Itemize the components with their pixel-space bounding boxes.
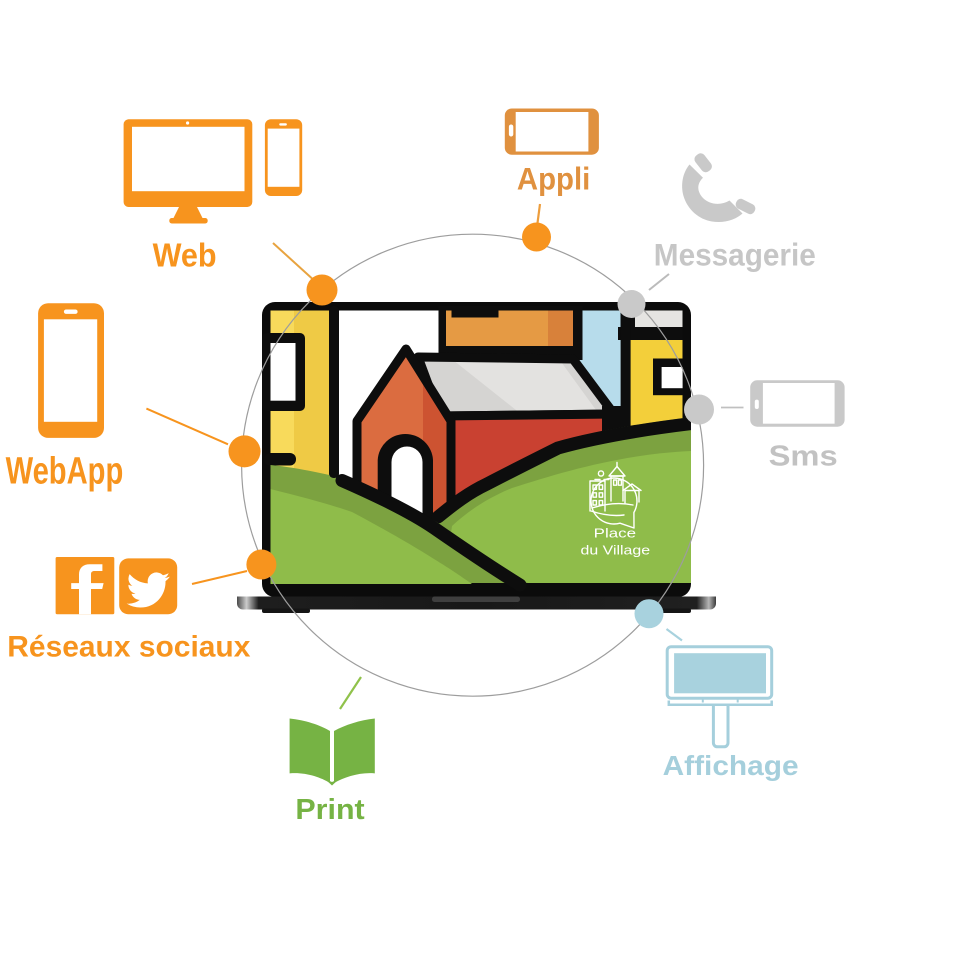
svg-text:Sms: Sms [769,440,838,472]
svg-text:Réseaux sociaux: Réseaux sociaux [7,631,250,664]
svg-text:WebApp: WebApp [6,450,124,492]
svg-text:Appli: Appli [517,161,590,197]
svg-text:Place: Place [594,526,636,541]
svg-text:Web: Web [153,237,217,274]
svg-text:Messagerie: Messagerie [654,237,816,273]
svg-text:Affichage: Affichage [663,750,799,781]
svg-text:du Village: du Village [581,542,651,557]
svg-text:Print: Print [295,794,365,826]
